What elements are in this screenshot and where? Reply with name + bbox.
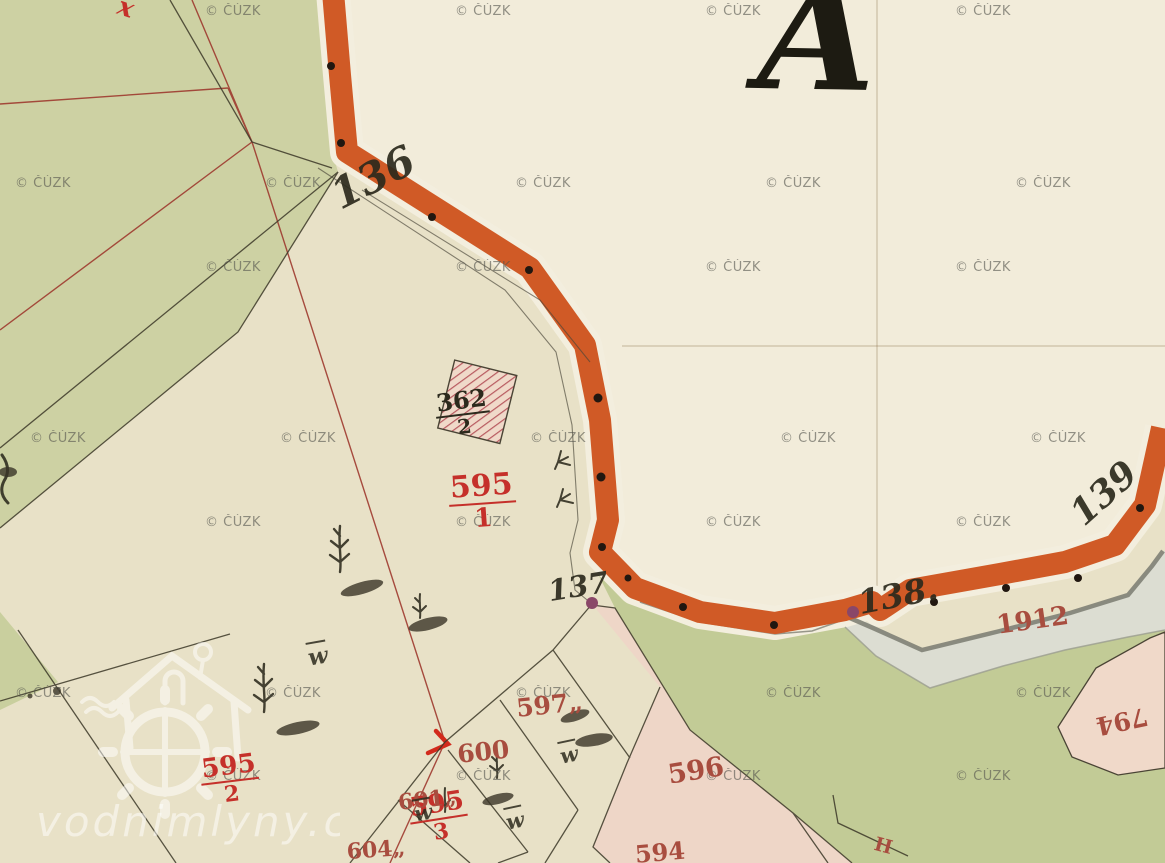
parcel-label-362-2: 3622 [433, 385, 493, 439]
historical-cadastral-map[interactable]: A vodnimlyny.cz © ČÚZK© ČÚZK© ČÚZK© ČÚZK… [0, 0, 1165, 863]
territory-letter-A: A [756, 0, 877, 126]
parcel-label-604: 604„ [346, 837, 406, 863]
parcel-label-597: 597„ [515, 689, 584, 721]
parcel-label-595-1: 5951 [447, 469, 518, 534]
map-drawing [0, 0, 1165, 863]
parcel-label-594: 594 [634, 839, 686, 863]
parcel-label-595-2: 5952 [198, 750, 262, 809]
meadow-w-symbol: w [306, 641, 330, 671]
parcel-label-600: 600 [456, 737, 511, 767]
